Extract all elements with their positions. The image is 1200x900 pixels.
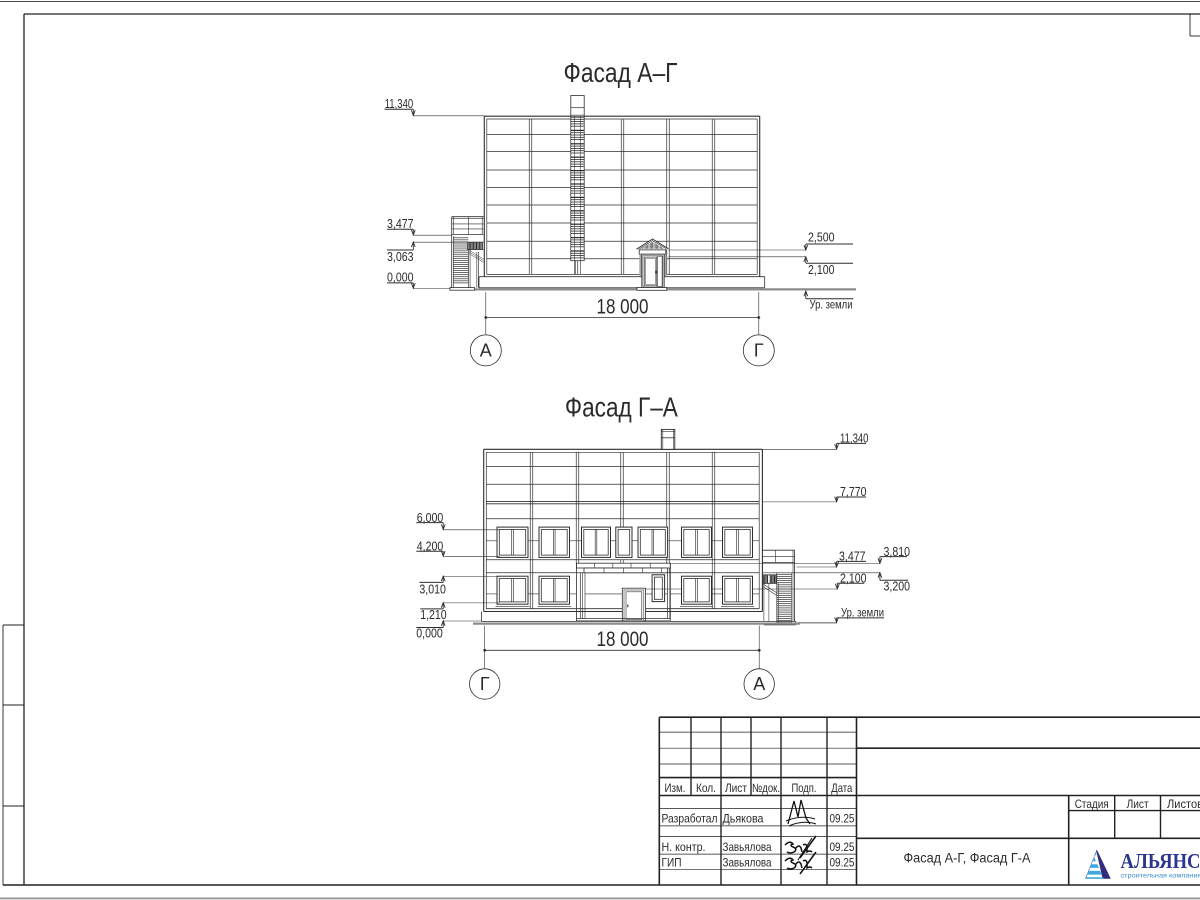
svg-text:0,000: 0,000 [387,270,414,285]
svg-text:Дата: Дата [831,781,852,795]
svg-text:Фасад А-Г, Фасад Г-А: Фасад А-Г, Фасад Г-А [904,849,1032,865]
svg-text:А: А [753,674,765,694]
svg-text:09.25: 09.25 [830,811,855,825]
svg-text:3,477: 3,477 [387,216,414,231]
svg-text:Н. контр.: Н. контр. [662,840,706,854]
svg-text:3,010: 3,010 [419,581,446,596]
svg-text:Подп.: Подп. [792,781,817,795]
svg-text:Фасад Г–А: Фасад Г–А [565,392,678,423]
svg-text:Завьялова: Завьялова [723,855,772,869]
svg-text:Стадия: Стадия [1075,797,1109,811]
svg-text:09.25: 09.25 [830,840,855,854]
svg-text:2,100: 2,100 [808,262,835,277]
svg-text:Г: Г [480,674,490,694]
svg-text:Кол.: Кол. [696,781,716,795]
svg-text:3,063: 3,063 [387,249,414,264]
svg-text:строительная компания: строительная компания [1121,873,1200,880]
svg-text:Разработал: Разработал [662,811,718,825]
svg-text:Изм.: Изм. [665,781,686,795]
svg-text:2,500: 2,500 [808,230,835,245]
svg-text:Лист: Лист [725,781,747,795]
svg-text:11,340: 11,340 [385,96,414,111]
svg-text:АЛЬЯНС: АЛЬЯНС [1121,849,1200,873]
svg-text:Г: Г [754,341,764,361]
svg-text:Дьякова: Дьякова [723,811,764,825]
svg-text:Листов: Листов [1167,797,1200,811]
svg-text:А: А [480,341,492,361]
svg-text:ГИП: ГИП [662,855,682,869]
svg-text:18 000: 18 000 [597,296,649,319]
svg-text:09.25: 09.25 [830,855,855,869]
svg-text:№док.: №док. [752,781,780,795]
svg-text:Завьялова: Завьялова [723,840,772,854]
svg-text:Лист: Лист [1127,797,1150,811]
svg-text:18 000: 18 000 [597,628,649,651]
svg-text:Фасад А–Г: Фасад А–Г [564,57,678,88]
svg-text:Ур. земли: Ур. земли [810,300,853,312]
